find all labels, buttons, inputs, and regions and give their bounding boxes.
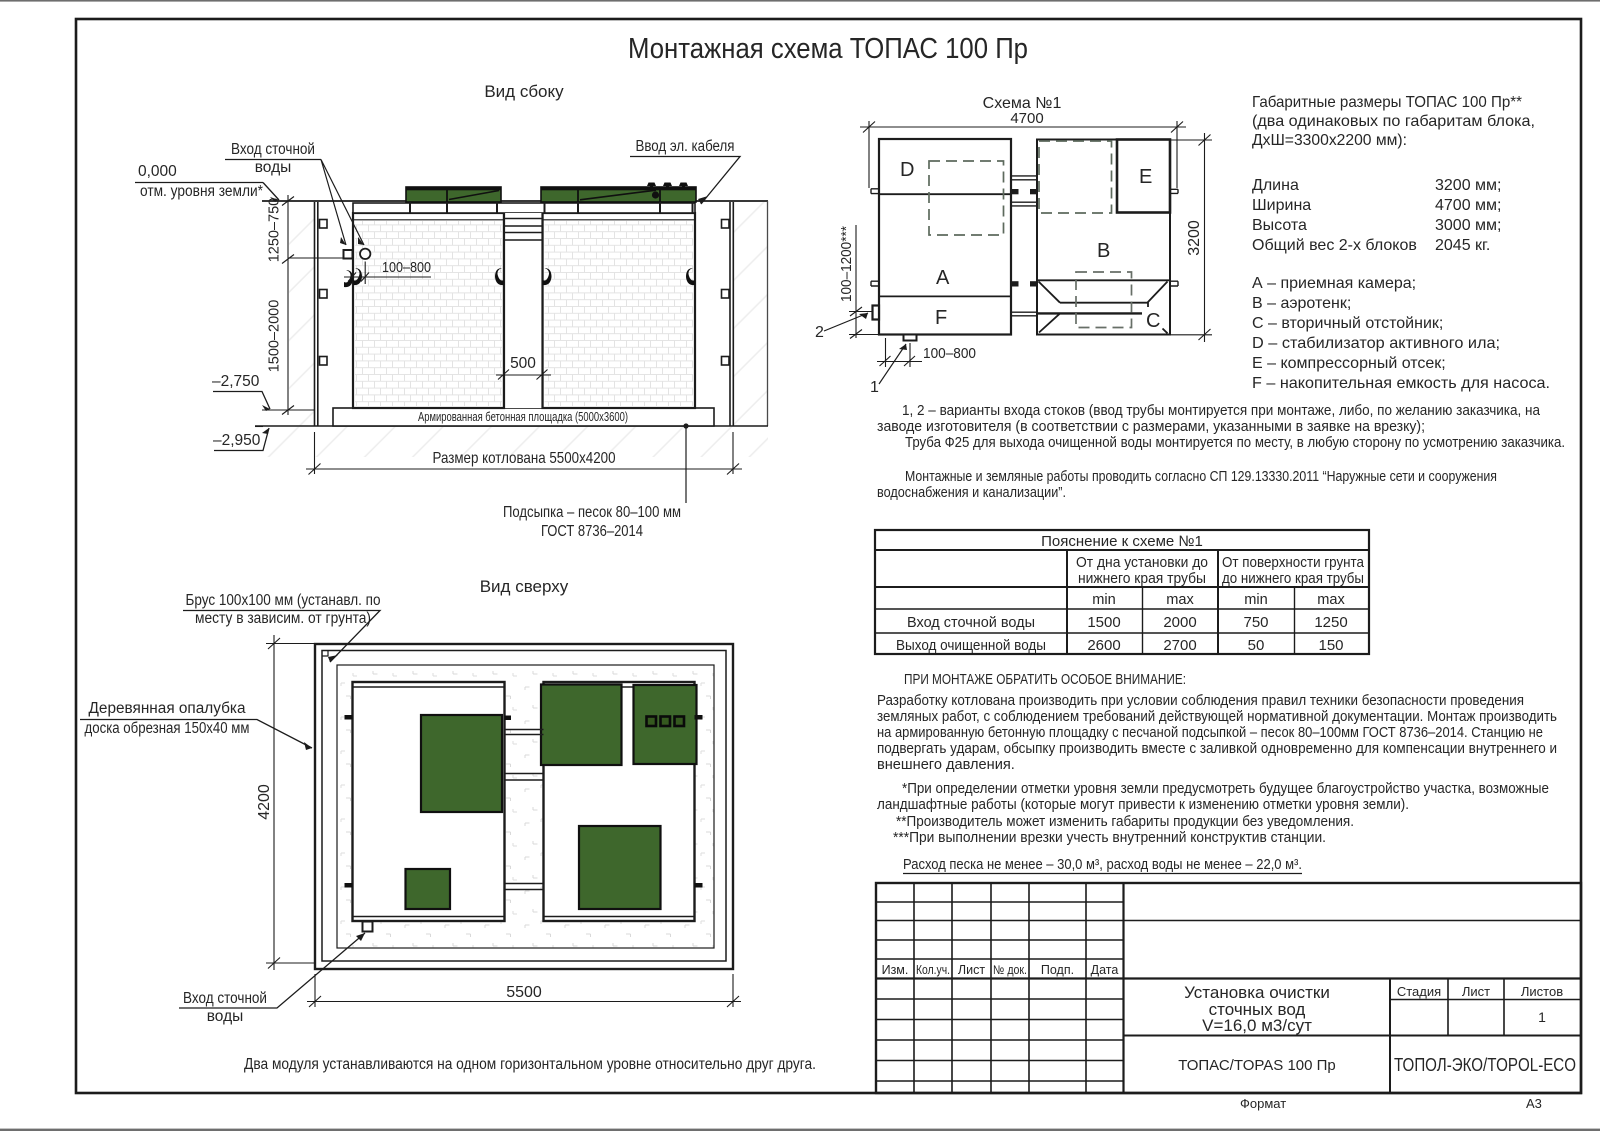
svg-text:**Производитель может изменить: **Производитель может изменить габариты …	[896, 814, 1354, 830]
svg-text:до нижнего края трубы: до нижнего края трубы	[1222, 571, 1364, 587]
svg-text:подвергать ударам, обсыпку про: подвергать ударам, обсыпку производить в…	[877, 741, 1557, 757]
svg-text:750: 750	[1243, 614, 1268, 631]
svg-text:месту в зависим. от грунта): месту в зависим. от грунта)	[195, 610, 371, 627]
svg-text:ПРИ МОНТАЖЕ ОБРАТИТЬ ОСОБОЕ ВН: ПРИ МОНТАЖЕ ОБРАТИТЬ ОСОБОЕ ВНИМАНИЕ:	[904, 672, 1186, 688]
svg-text:Дата: Дата	[1091, 963, 1119, 977]
svg-text:min: min	[1092, 592, 1116, 608]
svg-text:B: B	[1097, 240, 1110, 262]
svg-text:Размер котлована 5500х4200: Размер котлована 5500х4200	[433, 450, 616, 467]
svg-text:150: 150	[1318, 637, 1343, 654]
svg-text:Лист: Лист	[958, 963, 985, 977]
svg-text:F – накопительная емкость для: F – накопительная емкость для насоса.	[1252, 375, 1550, 392]
svg-text:Кол.уч.: Кол.уч.	[916, 963, 950, 977]
svg-text:Выход очищенной воды: Выход очищенной воды	[896, 637, 1046, 654]
svg-text:А3: А3	[1526, 1096, 1542, 1111]
svg-text:2: 2	[815, 324, 824, 341]
svg-text:Монтажные и земляные работы пр: Монтажные и земляные работы проводить со…	[905, 469, 1497, 485]
svg-text:Деревянная опалубка: Деревянная опалубка	[89, 700, 246, 717]
svg-text:1500–2000: 1500–2000	[267, 300, 283, 373]
svg-text:ландшафтные работы (которые мо: ландшафтные работы (которые могут привес…	[877, 797, 1409, 813]
svg-text:1: 1	[1538, 1009, 1546, 1025]
svg-text:земляных работ, с соблюдением: земляных работ, с соблюдением требований…	[877, 709, 1557, 725]
svg-text:2000: 2000	[1163, 614, 1196, 631]
svg-text:Листов: Листов	[1521, 984, 1563, 999]
svg-text:Высота: Высота	[1252, 217, 1307, 234]
svg-text:C: C	[1146, 310, 1160, 332]
svg-text:4700: 4700	[1010, 110, 1043, 127]
svg-text:на армированную бетонную площа: на армированную бетонную площадку с песч…	[877, 725, 1543, 741]
svg-text:E – компрессорный отсек;: E – компрессорный отсек;	[1252, 355, 1446, 372]
svg-text:–2,750: –2,750	[212, 373, 260, 390]
svg-text:2045 кг.: 2045 кг.	[1435, 237, 1490, 254]
svg-text:1, 2 – варианты входа стоков: 1, 2 – варианты входа стоков (ввод трубы…	[902, 403, 1541, 419]
svg-text:(два одинаковых по габаритам б: (два одинаковых по габаритам блока,	[1252, 113, 1535, 130]
svg-text:Вход сточной: Вход сточной	[183, 990, 267, 1007]
svg-text:Вход сточной воды: Вход сточной воды	[907, 614, 1035, 631]
svg-text:Вид сбоку: Вид сбоку	[484, 82, 564, 101]
svg-text:max: max	[1166, 592, 1194, 608]
svg-text:100–1200***: 100–1200***	[838, 226, 855, 302]
svg-text:Расход песка не менее – 30,0 м: Расход песка не менее – 30,0 м³, расход …	[903, 857, 1302, 873]
svg-text:3200 мм;: 3200 мм;	[1435, 177, 1501, 194]
svg-text:От поверхности грунта: От поверхности грунта	[1222, 555, 1365, 571]
svg-text:ТОПАС/TOPAS 100 Пр: ТОПАС/TOPAS 100 Пр	[1178, 1057, 1336, 1074]
svg-text:V=16,0 м3/сут: V=16,0 м3/сут	[1202, 1016, 1312, 1035]
svg-text:водоснабжения и канализации”.: водоснабжения и канализации”.	[877, 485, 1066, 501]
svg-text:Два модуля устанавливаются на: Два модуля устанавливаются на одном гори…	[244, 1056, 816, 1073]
svg-text:2600: 2600	[1087, 637, 1120, 654]
svg-text:2700: 2700	[1163, 637, 1196, 654]
svg-text:ГОСТ 8736–2014: ГОСТ 8736–2014	[541, 523, 643, 540]
svg-text:№ док.: № док.	[993, 963, 1027, 977]
svg-text:1250–750: 1250–750	[267, 198, 283, 263]
svg-text:4700 мм;: 4700 мм;	[1435, 197, 1501, 214]
svg-text:Длина: Длина	[1252, 177, 1299, 194]
svg-text:Вход сточной: Вход сточной	[231, 141, 315, 158]
svg-text:воды: воды	[255, 159, 292, 176]
svg-text:внешнего давления.: внешнего давления.	[877, 757, 1015, 773]
svg-text:А – приемная камера;: А – приемная камера;	[1252, 275, 1416, 292]
svg-text:100–800: 100–800	[923, 345, 976, 362]
svg-text:Формат: Формат	[1240, 1096, 1286, 1111]
svg-text:1500: 1500	[1087, 614, 1120, 631]
svg-text:***При выполнении врезки учест: ***При выполнении врезки учесть внутренн…	[893, 830, 1326, 846]
svg-text:Подсыпка – песок 80–100 мм: Подсыпка – песок 80–100 мм	[503, 504, 681, 521]
svg-text:Монтажная схема ТОПАС 100 Пр: Монтажная схема ТОПАС 100 Пр	[628, 33, 1028, 65]
svg-text:отм. уровня земли*: отм. уровня земли*	[140, 183, 263, 200]
svg-text:Разработку котлована производи: Разработку котлована производить при усл…	[877, 693, 1524, 709]
svg-text:D: D	[900, 159, 914, 181]
svg-text:Лист: Лист	[1462, 984, 1490, 999]
svg-text:F: F	[935, 307, 947, 329]
svg-text:Брус 100х100 мм (устанавл. по: Брус 100х100 мм (устанавл. по	[186, 592, 381, 609]
svg-text:50: 50	[1248, 637, 1265, 654]
svg-text:Вид сверху: Вид сверху	[480, 577, 569, 596]
svg-text:ДхШ=3300х2200 мм):: ДхШ=3300х2200 мм):	[1252, 132, 1407, 149]
svg-text:воды: воды	[207, 1008, 244, 1025]
svg-text:3200: 3200	[1186, 220, 1203, 256]
svg-text:Общий вес 2-х блоков: Общий вес 2-х блоков	[1252, 237, 1417, 254]
svg-text:500: 500	[510, 355, 536, 372]
svg-text:доска обрезная 150х40 мм: доска обрезная 150х40 мм	[85, 720, 250, 737]
svg-text:Армированная бетонная площадка: Армированная бетонная площадка (5000х360…	[418, 409, 628, 424]
svg-text:A: A	[936, 267, 950, 289]
svg-text:Труба Ф25 для выхода очищенной: Труба Ф25 для выхода очищенной воды монт…	[905, 435, 1565, 451]
svg-text:Подп.: Подп.	[1041, 963, 1074, 977]
svg-text:1: 1	[870, 379, 879, 396]
svg-text:нижнего края трубы: нижнего края трубы	[1078, 571, 1206, 587]
svg-text:Изм.: Изм.	[882, 963, 909, 977]
svg-text:E: E	[1139, 166, 1152, 188]
svg-text:От дна установки до: От дна установки до	[1076, 555, 1208, 571]
svg-text:5500: 5500	[506, 984, 542, 1001]
svg-text:1250: 1250	[1314, 614, 1347, 631]
svg-text:0,000: 0,000	[138, 163, 177, 180]
svg-text:*При определении отметки уровн: *При определении отметки уровня земли пр…	[902, 781, 1549, 797]
svg-text:max: max	[1317, 592, 1345, 608]
svg-text:ТОПОЛ-ЭКО/TOPOL-ECO: ТОПОЛ-ЭКО/TOPOL-ECO	[1394, 1054, 1576, 1075]
svg-text:4200: 4200	[256, 784, 273, 820]
svg-text:D – стабилизатор активного ила: D – стабилизатор активного ила;	[1252, 335, 1500, 352]
svg-text:Стадия: Стадия	[1397, 984, 1441, 999]
svg-text:100–800: 100–800	[382, 259, 431, 276]
svg-text:3000 мм;: 3000 мм;	[1435, 217, 1501, 234]
svg-text:Габаритные размеры ТОПАС 100 П: Габаритные размеры ТОПАС 100 Пр**	[1252, 94, 1522, 111]
svg-text:заводе изготовителя (в соответ: заводе изготовителя (в соответствии с ра…	[877, 419, 1425, 435]
svg-text:min: min	[1244, 592, 1268, 608]
svg-text:Пояснение к схеме №1: Пояснение к схеме №1	[1041, 533, 1203, 550]
svg-text:Ширина: Ширина	[1252, 197, 1311, 214]
svg-text:Ввод эл. кабеля: Ввод эл. кабеля	[636, 138, 735, 155]
svg-text:–2,950: –2,950	[213, 432, 261, 449]
svg-text:B – аэротенк;: B – аэротенк;	[1252, 295, 1351, 312]
svg-text:C – вторичный отстойник;: C – вторичный отстойник;	[1252, 315, 1443, 332]
